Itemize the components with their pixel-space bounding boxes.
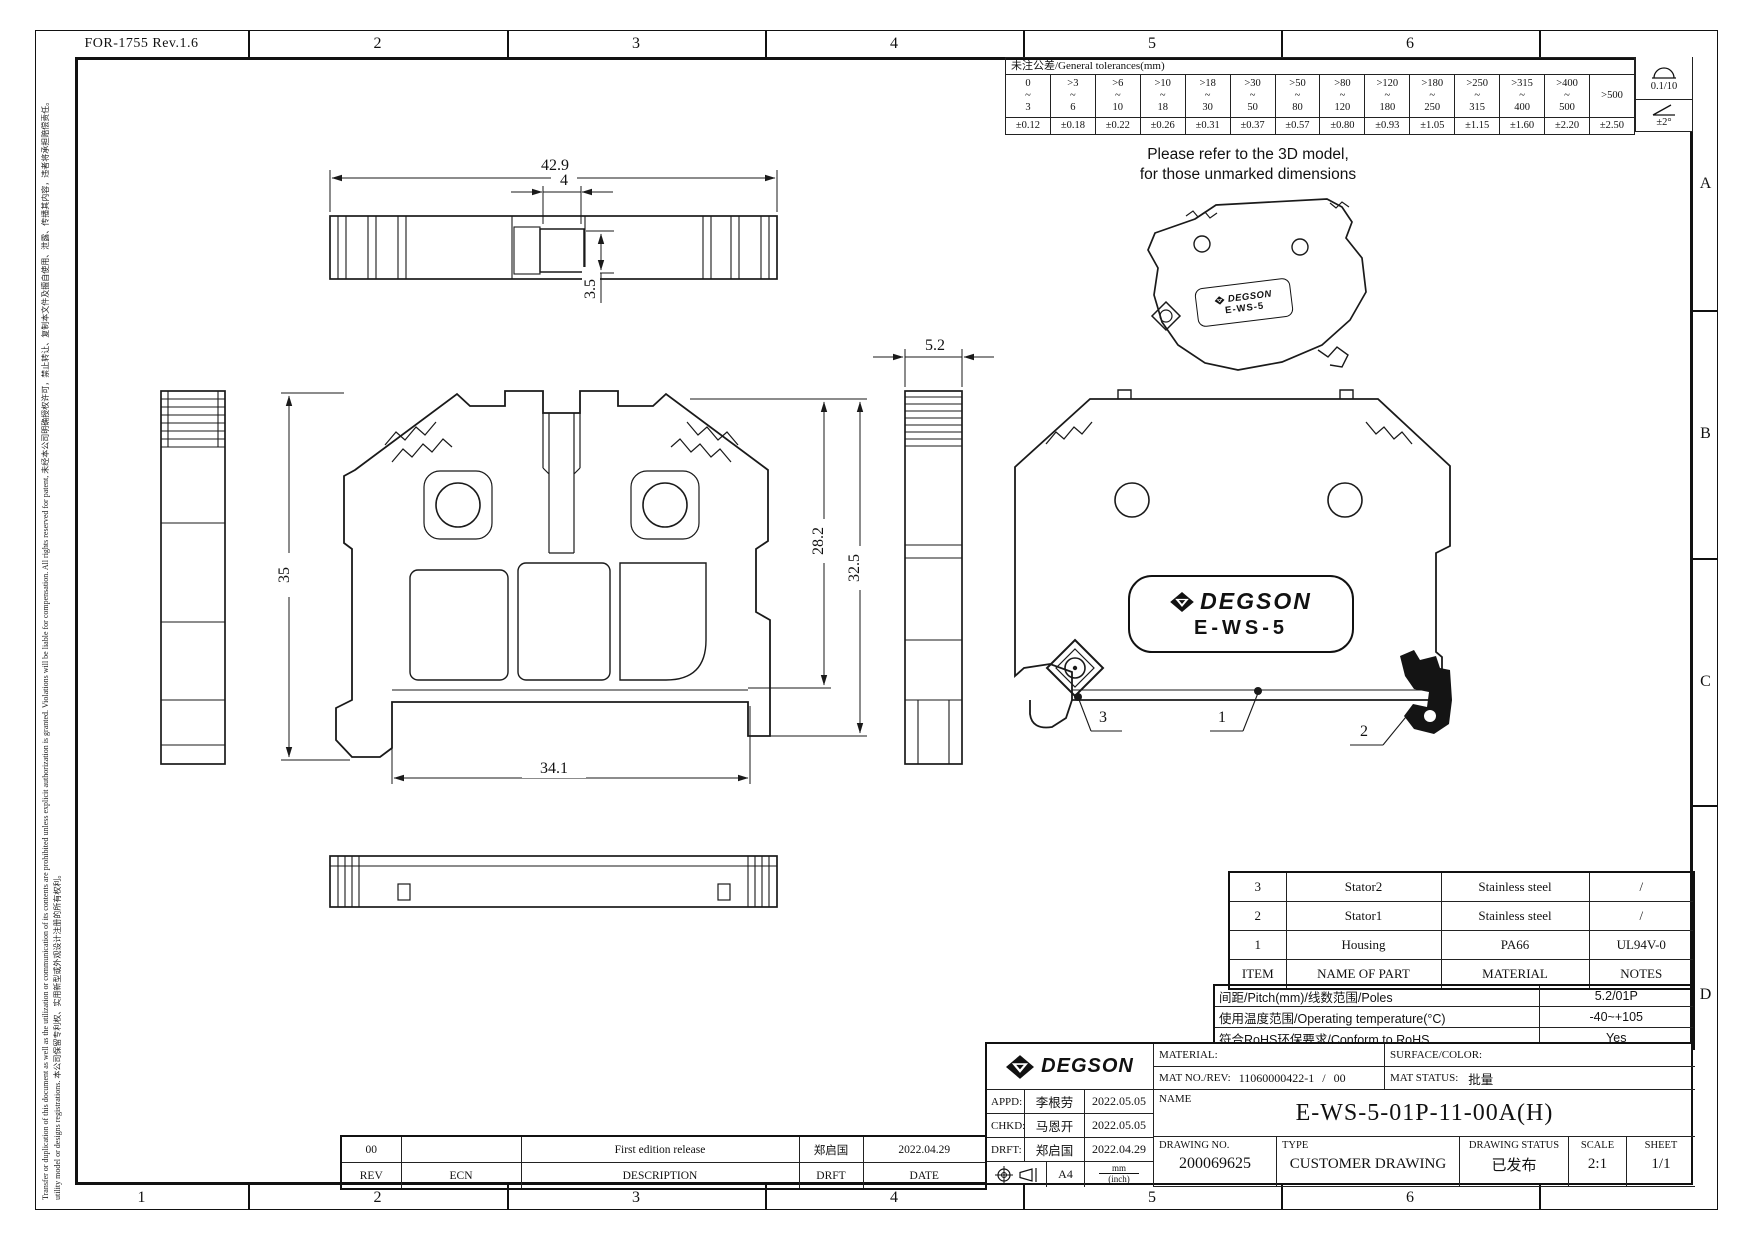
name-cell: NAME E-WS-5-01P-11-00A(H) [1154,1090,1695,1137]
mat-no-cell: MAT NO./REV: 11060000422-1 / 00 [1154,1067,1385,1090]
dim-slot-depth: 3.5 [582,267,600,311]
mat-status-label: MAT STATUS: [1390,1072,1458,1084]
note-line-2: for those unmarked dimensions [1098,165,1398,185]
revision-table: 00 First edition release 郑启国 2022.04.29 … [340,1135,987,1190]
tolerance-range: >18 ~ 30 [1185,75,1230,118]
angle-cell: ±2° [1636,100,1692,131]
chkd-date: 2022.05.05 [1085,1114,1154,1138]
ecn-value [401,1136,521,1163]
degson-logo-icon [1214,295,1225,305]
part-name: Stator2 [1286,872,1441,902]
dim-body-height: 28.2 [810,519,828,563]
mat-status-value: 批量 [1468,1069,1493,1088]
zone-label-top: 6 [1281,30,1539,57]
zone-label-top: 5 [1023,30,1281,57]
name-label: NAME [1159,1093,1191,1105]
tolerance-value: ±0.18 [1050,118,1095,135]
zone-label-right: B [1693,310,1718,558]
angle-icon [1651,103,1677,117]
projection-symbol [987,1162,1047,1187]
table-row: 使用温度范围/Operating temperature(°C) -40~+10… [1214,1007,1694,1028]
degson-logo: DEGSON [987,1044,1154,1090]
scale-value: 2:1 [1569,1151,1626,1177]
part-name: Stator1 [1286,902,1441,931]
chkd-name: 马恩开 [1025,1114,1085,1138]
tolerance-range: >30 ~ 50 [1230,75,1275,118]
degson-logo-icon [1170,592,1194,612]
part-name: Housing [1286,931,1441,960]
tolerances-title: 未注公差/General tolerances(mm) [1006,58,1635,75]
dim-base-width: 34.1 [522,760,586,778]
flatness-cell: 0.1/10 [1636,57,1692,100]
dim-thickness: 5.2 [913,337,957,355]
tolerance-value: ±0.31 [1185,118,1230,135]
mat-no-label: MAT NO./REV: [1159,1072,1231,1084]
dim-overall-height: 32.5 [846,546,864,590]
drawing-sheet: FOR-1755 Rev.1.6 2 3 4 5 6 1 2 3 4 5 6 A… [0,0,1754,1240]
mat-no-value: 11060000422-1 [1239,1071,1315,1086]
material-label: MATERIAL: [1154,1044,1385,1067]
side-plate-brand: DEGSON [1200,588,1312,615]
degson-logo-icon [1006,1055,1034,1079]
spec-label: 间距/Pitch(mm)/线数范围/Poles [1214,985,1539,1007]
spec-value: 5.2/01P [1539,985,1694,1007]
legal-line-1: Transfer or duplication of this document… [40,98,52,1200]
tolerance-value: ±1.15 [1455,118,1500,135]
rev-date: 2022.04.29 [863,1136,986,1163]
tolerance-range: >250 ~ 315 [1455,75,1500,118]
legal-line-2: utility model or designs registrations. … [52,98,64,1200]
zone-label-right: C [1693,558,1718,805]
tolerance-range: >500 [1589,75,1634,118]
legal-notice: Transfer or duplication of this document… [40,98,65,1200]
zone-divider [1539,30,1541,57]
tolerance-range: >400 ~ 500 [1545,75,1590,118]
tolerance-value: ±0.57 [1275,118,1320,135]
drft-label: DRFT: [987,1138,1025,1162]
drft-name: 郑启国 [1025,1138,1085,1162]
general-tolerances-table: 未注公差/General tolerances(mm) 0 ~ 3 >3 ~ 6… [1005,57,1635,135]
callout-3: 3 [1093,710,1113,726]
mat-status-cell: MAT STATUS: 批量 [1385,1067,1695,1090]
flatness-value: 0.1/10 [1651,81,1678,92]
zone-label-right: D [1693,805,1718,1185]
cone-icon [1019,1168,1039,1182]
zone-label-bottom: 6 [1281,1185,1539,1210]
tolerance-value: ±1.05 [1410,118,1455,135]
table-row: 间距/Pitch(mm)/线数范围/Poles 5.2/01P [1214,985,1694,1007]
note-line-1: Please refer to the 3D model, [1098,145,1398,165]
part-notes: / [1589,902,1694,931]
table-row: 2 Stator1 Stainless steel / [1229,902,1694,931]
paper-size: A4 [1047,1162,1085,1187]
drawing-no-label: DRAWING NO. [1154,1137,1276,1151]
spec-table: 间距/Pitch(mm)/线数范围/Poles 5.2/01P 使用温度范围/O… [1213,984,1695,1050]
tolerance-value: ±0.93 [1365,118,1410,135]
angle-value: ±2° [1656,117,1671,128]
appd-date: 2022.05.05 [1085,1090,1154,1114]
chkd-label: CHKD: [987,1114,1025,1138]
tolerance-range: 0 ~ 3 [1006,75,1051,118]
tolerance-range: >120 ~ 180 [1365,75,1410,118]
zone-label-bottom: 1 [35,1185,248,1210]
tolerance-range: >10 ~ 18 [1140,75,1185,118]
mat-rev-value: 00 [1334,1071,1346,1086]
dim-height: 35 [276,553,294,597]
appd-label: APPD: [987,1090,1025,1114]
status-value: 已发布 [1460,1151,1568,1177]
zone-label-top: 3 [507,30,765,57]
side-nameplate: DEGSON E-WS-5 [1128,575,1354,653]
callout-1: 1 [1212,710,1232,726]
units-symbol: mm (inch) [1085,1162,1154,1187]
rev-value: 00 [341,1136,401,1163]
appd-name: 李根劳 [1025,1090,1085,1114]
spec-label: 使用温度范围/Operating temperature(°C) [1214,1007,1539,1028]
sheet-label: SHEET [1627,1137,1695,1151]
surface-label: SURFACE/COLOR: [1385,1044,1695,1067]
tolerance-value: ±2.50 [1589,118,1634,135]
tolerance-range: >180 ~ 250 [1410,75,1455,118]
flatness-angle-box: 0.1/10 ±2° [1635,57,1693,132]
callout-2: 2 [1354,724,1374,740]
part-item: 1 [1229,931,1286,960]
sheet-value: 1/1 [1627,1151,1695,1177]
tolerance-range: >80 ~ 120 [1320,75,1365,118]
tolerance-value: ±0.37 [1230,118,1275,135]
rev-drafter: 郑启国 [799,1136,863,1163]
col-header-drft: DRFT [799,1163,863,1190]
tolerance-range: >315 ~ 400 [1500,75,1545,118]
scale-cell: SCALE 2:1 [1569,1137,1627,1187]
part-material: Stainless steel [1441,872,1589,902]
sheet-cell: SHEET 1/1 [1627,1137,1695,1187]
side-plate-model: E-WS-5 [1194,617,1288,640]
drawing-no-value: 200069625 [1154,1151,1276,1177]
units-inch: (inch) [1085,1174,1153,1184]
zone-divider [1539,1185,1541,1210]
drft-date: 2022.04.29 [1085,1138,1154,1162]
type-value: CUSTOMER DRAWING [1277,1151,1459,1177]
part-material: Stainless steel [1441,902,1589,931]
type-label: TYPE [1277,1137,1459,1151]
tolerance-value: ±0.12 [1006,118,1051,135]
title-block: DEGSON APPD: 李根劳 2022.05.05 CHKD: 马恩开 20… [985,1042,1693,1185]
mat-rev-sep: / [1322,1071,1325,1086]
part-number: E-WS-5-01P-11-00A(H) [1154,1090,1695,1136]
rev-description: First edition release [521,1136,799,1163]
type-cell: TYPE CUSTOMER DRAWING [1277,1137,1460,1187]
col-header-ecn: ECN [401,1163,521,1190]
scale-label: SCALE [1569,1137,1626,1151]
tolerance-value: ±0.80 [1320,118,1365,135]
col-header-rev: REV [341,1163,401,1190]
col-header-description: DESCRIPTION [521,1163,799,1190]
table-row: 1 Housing PA66 UL94V-0 [1229,931,1694,960]
zone-label-top: 4 [765,30,1023,57]
zone-label-right: A [1693,57,1718,310]
revision-row: 00 First edition release 郑启国 2022.04.29 [341,1136,986,1163]
part-notes: / [1589,872,1694,902]
part-notes: UL94V-0 [1589,931,1694,960]
tolerance-value: ±0.26 [1140,118,1185,135]
part-item: 3 [1229,872,1286,902]
degson-logo-text: DEGSON [1041,1055,1134,1078]
tolerance-range: >6 ~ 10 [1095,75,1140,118]
col-header-date: DATE [863,1163,986,1190]
status-label: DRAWING STATUS [1460,1137,1568,1151]
status-cell: DRAWING STATUS 已发布 [1460,1137,1569,1187]
tolerance-range: >50 ~ 80 [1275,75,1320,118]
tolerance-value: ±0.22 [1095,118,1140,135]
zone-label-bottom: 5 [1023,1185,1281,1210]
model-note: Please refer to the 3D model, for those … [1098,145,1398,186]
units-mm: mm [1099,1163,1139,1174]
part-item: 2 [1229,902,1286,931]
revision-header-row: REV ECN DESCRIPTION DRFT DATE [341,1163,986,1190]
form-number: FOR-1755 Rev.1.6 [35,30,248,57]
table-row: 3 Stator2 Stainless steel / [1229,872,1694,902]
spec-value: -40~+105 [1539,1007,1694,1028]
tolerance-value: ±1.60 [1500,118,1545,135]
flatness-icon [1650,65,1678,80]
tolerance-value: ±2.20 [1545,118,1590,135]
parts-table: 3 Stator2 Stainless steel / 2 Stator1 St… [1228,871,1695,990]
part-material: PA66 [1441,931,1589,960]
dim-slot-width: 4 [551,172,577,190]
zone-label-top: 2 [248,30,507,57]
first-angle-icon [994,1165,1014,1185]
tolerance-range: >3 ~ 6 [1050,75,1095,118]
drawing-no-cell: DRAWING NO. 200069625 [1154,1137,1277,1187]
